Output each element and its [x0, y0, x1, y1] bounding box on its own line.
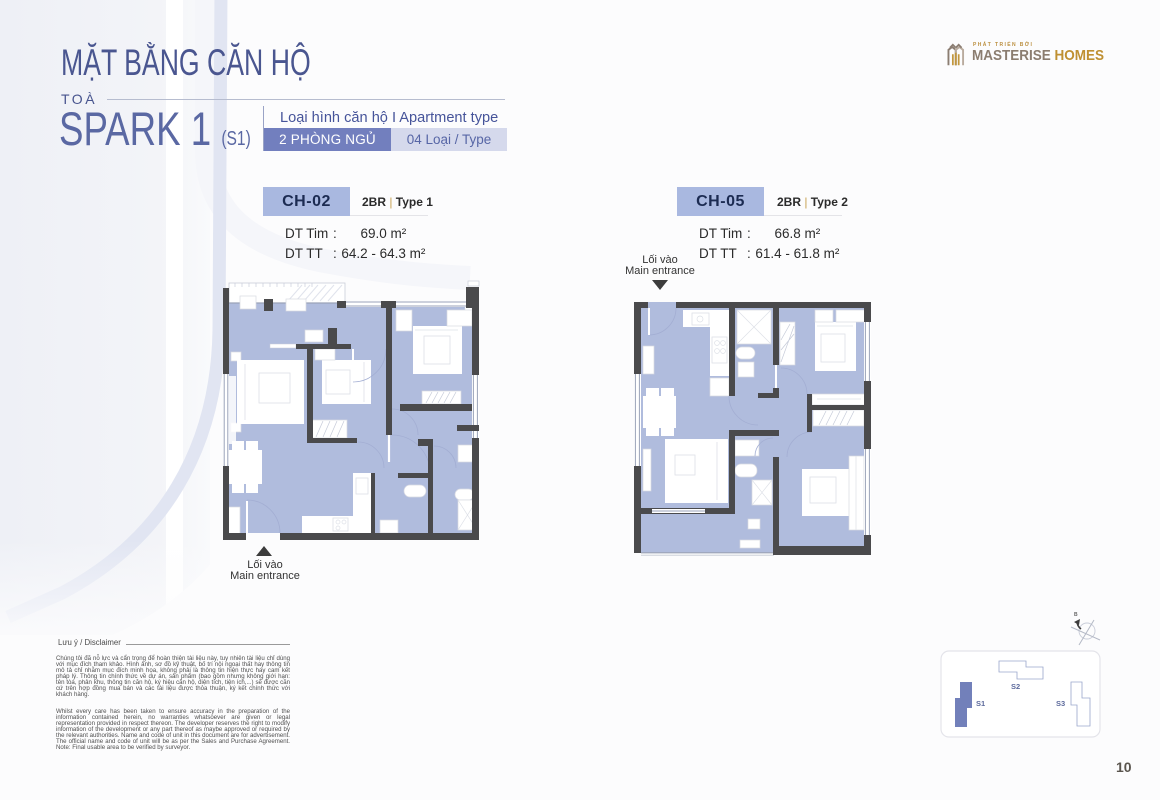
svg-text:B: B — [1074, 612, 1078, 618]
svg-text:S2: S2 — [1011, 682, 1020, 691]
svg-text:S3: S3 — [1056, 699, 1065, 708]
svg-text:S1: S1 — [976, 699, 985, 708]
